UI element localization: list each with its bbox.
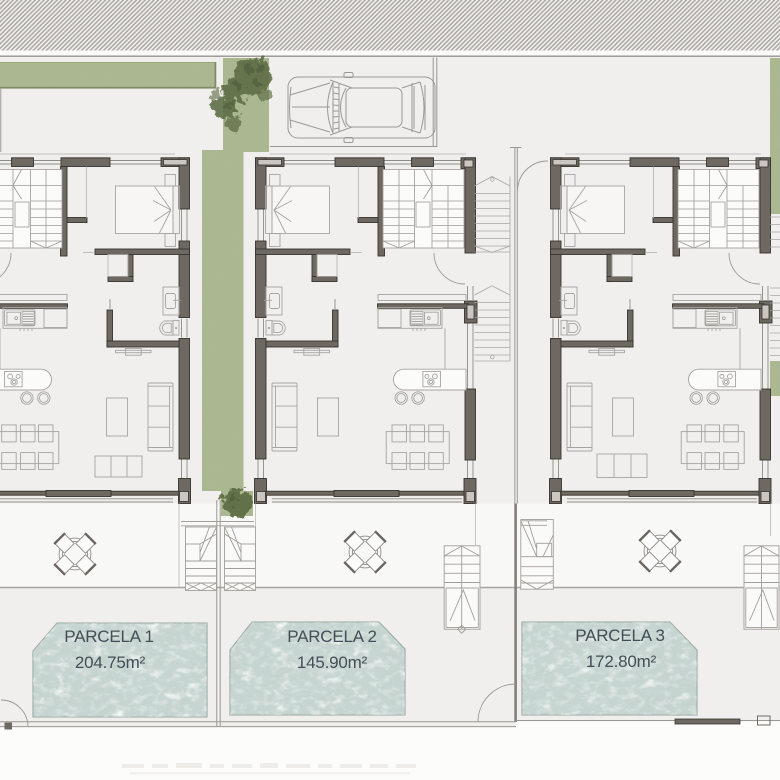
svg-text:204.75m²: 204.75m² xyxy=(75,653,146,672)
svg-text:PARCELA 3: PARCELA 3 xyxy=(575,626,665,645)
svg-text:145.90m²: 145.90m² xyxy=(297,653,368,672)
svg-text:PARCELA 2: PARCELA 2 xyxy=(287,627,377,646)
svg-text:PARCELA 1: PARCELA 1 xyxy=(64,627,154,646)
svg-text:172.80m²: 172.80m² xyxy=(586,652,657,671)
